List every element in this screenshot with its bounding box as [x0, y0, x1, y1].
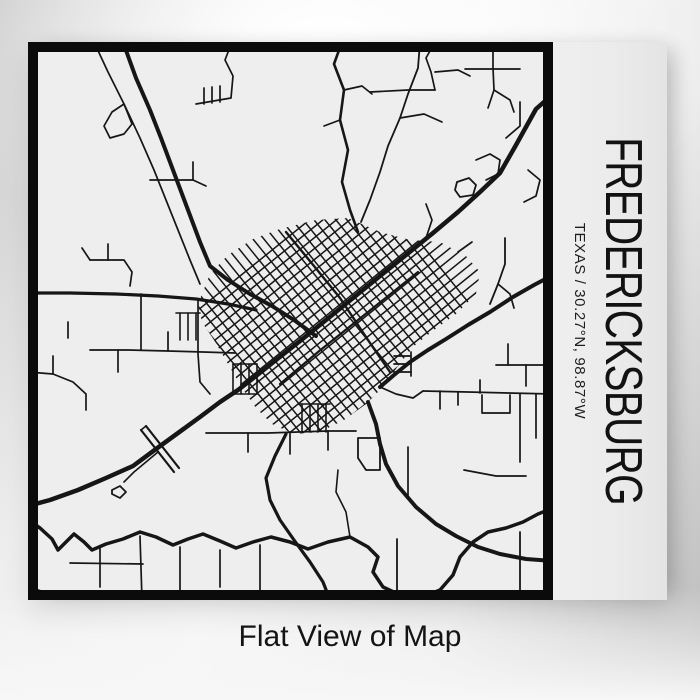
caption-label: Flat View of Map	[0, 620, 700, 654]
side-panel: FREDERICKSBURG TEXAS / 30.27°N, 98.87°W	[553, 42, 667, 600]
city-title: FREDERICKSBURG	[597, 137, 649, 505]
city-subtitle: TEXAS / 30.27°N, 98.87°W	[571, 223, 588, 419]
backdrop: FREDERICKSBURG TEXAS / 30.27°N, 98.87°W …	[0, 0, 700, 700]
map-graphic	[28, 42, 553, 600]
rotated-text-block: FREDERICKSBURG TEXAS / 30.27°N, 98.87°W	[571, 85, 649, 556]
map-print	[28, 42, 553, 600]
map-print-card: FREDERICKSBURG TEXAS / 30.27°N, 98.87°W	[28, 42, 667, 600]
